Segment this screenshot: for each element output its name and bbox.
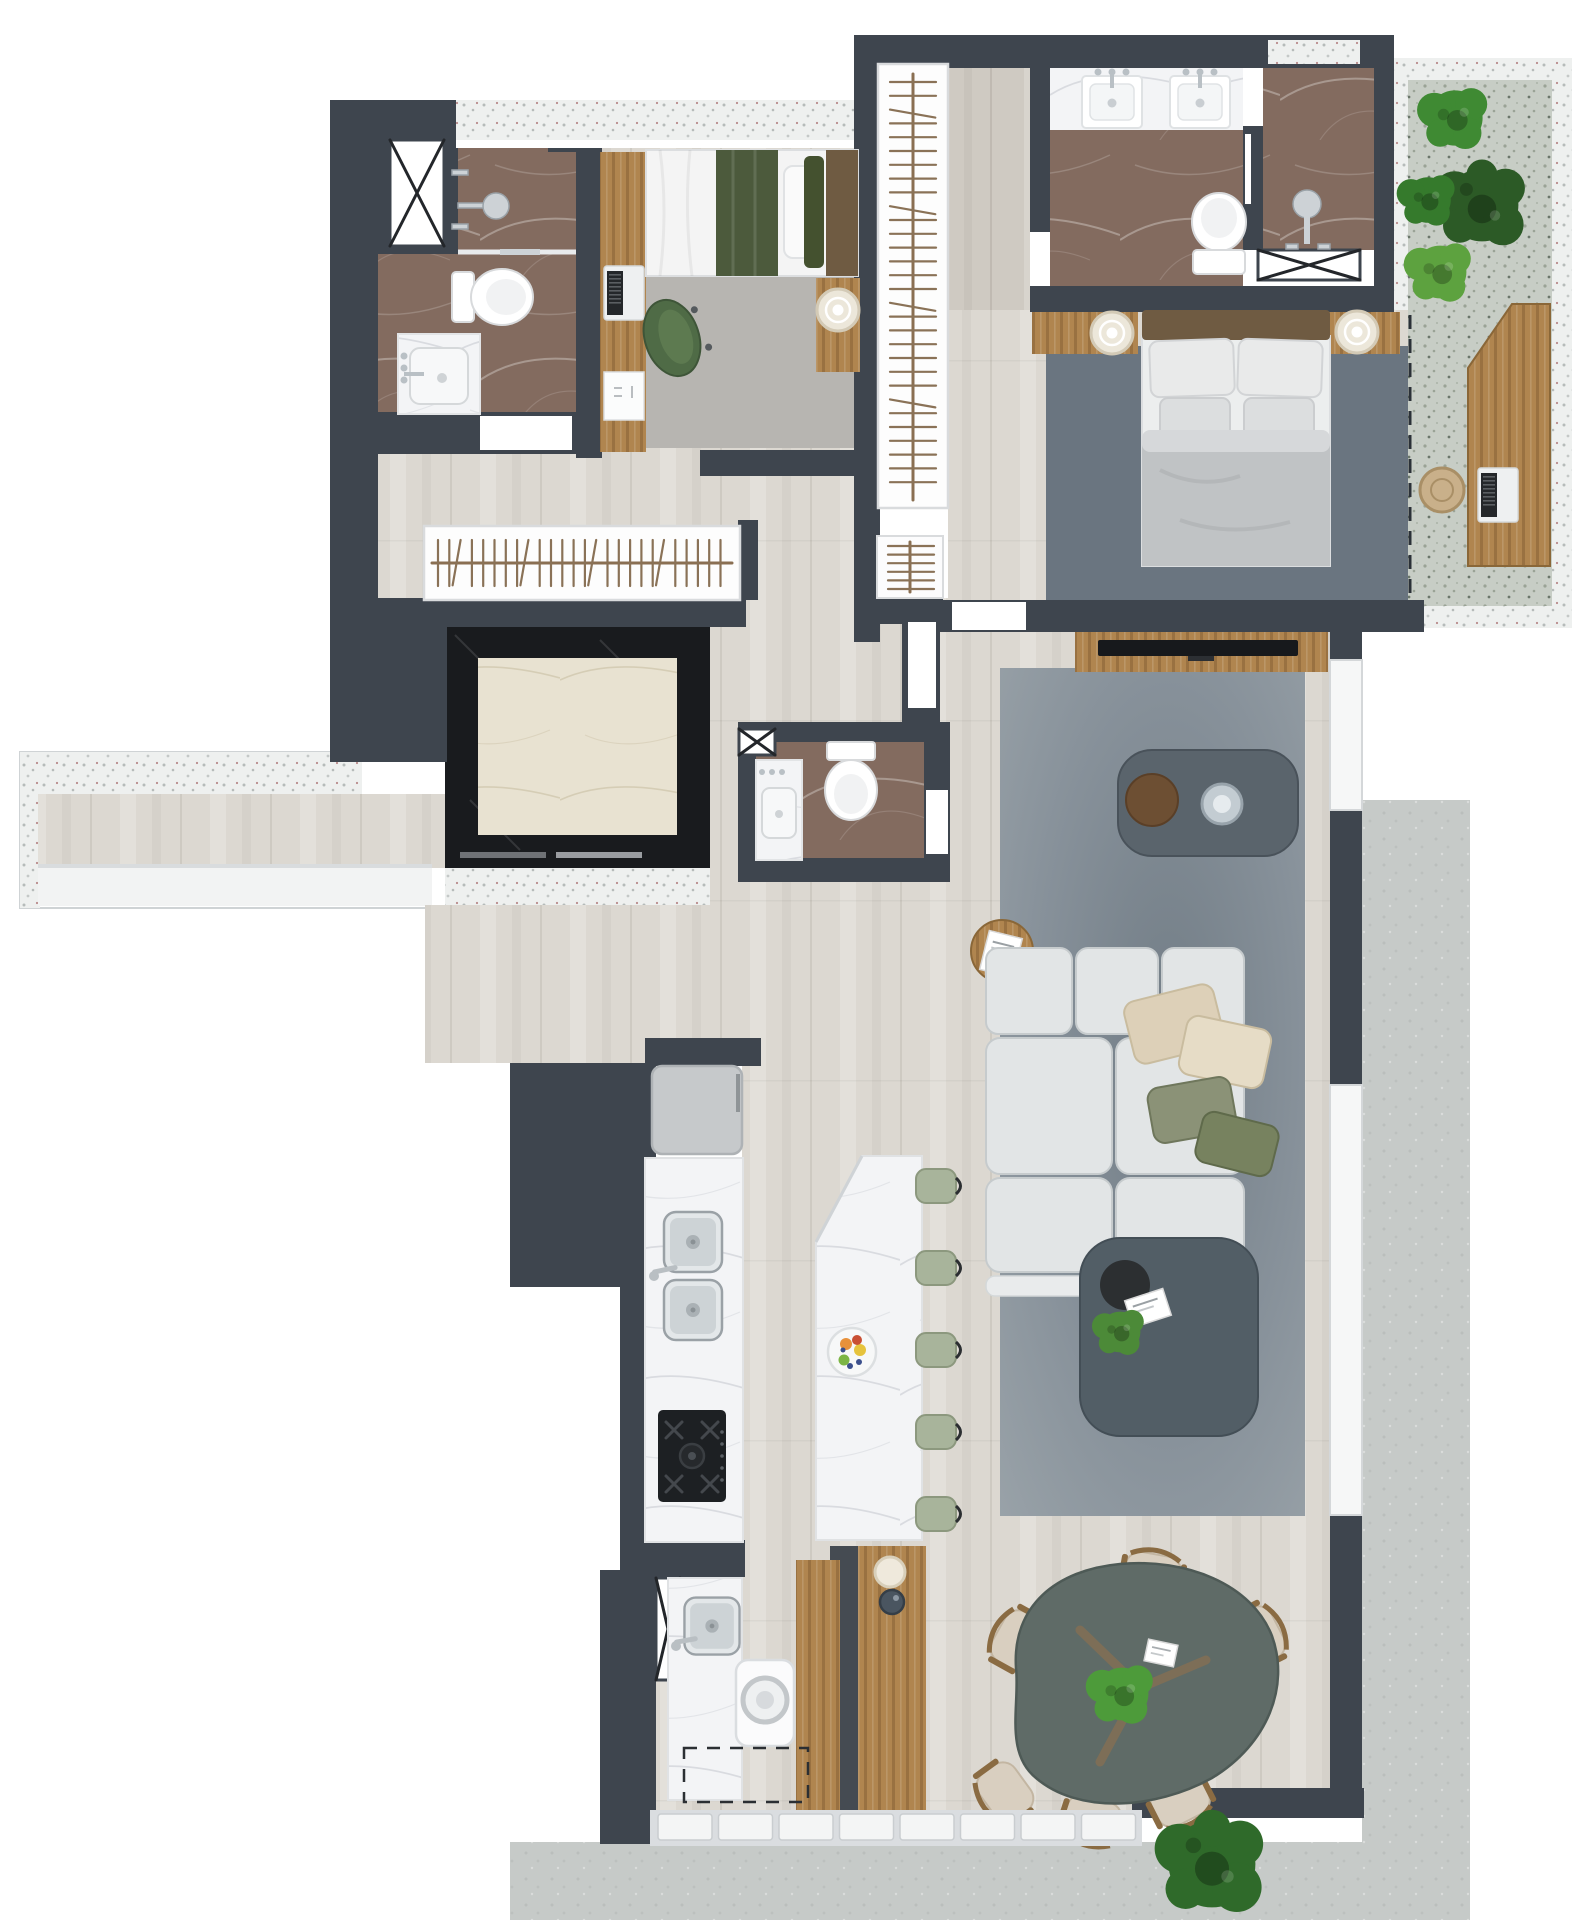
coffee-table-glass <box>1118 750 1298 856</box>
washing-machine <box>736 1660 794 1746</box>
balcony-laptop <box>1478 468 1518 522</box>
corridor-wood-deck <box>38 794 448 868</box>
wall-above-fridge <box>645 1038 761 1066</box>
right-terrace-concrete <box>1362 800 1470 1920</box>
corridor-white-band <box>38 868 432 906</box>
walk-in-closet <box>878 64 948 508</box>
tray-suite2 <box>817 289 859 331</box>
wall-kitchen-chunk <box>510 1063 656 1287</box>
master-shower-floor <box>1263 64 1374 250</box>
wall-bedroom2-bottom <box>700 450 856 476</box>
vase-dark <box>880 1590 904 1614</box>
vanity-powder <box>756 760 802 860</box>
laptop-suite2 <box>604 266 644 320</box>
duvet <box>1142 440 1330 566</box>
wall-entry-closet-bottom <box>877 596 943 624</box>
wall-laundry-left <box>600 1570 656 1844</box>
corridor-left-cap <box>20 752 40 908</box>
kitchen-sink-2 <box>664 1280 722 1340</box>
suite2-window-sill <box>456 140 854 148</box>
corridor-edge-line <box>38 864 432 868</box>
faucet-spout <box>404 372 424 376</box>
double-bed <box>1142 310 1330 566</box>
floor-plan-stage: apartment-floor-plan-top-view <box>0 0 1572 1920</box>
vanity-sink-1 <box>1082 69 1142 129</box>
shower-glass-handle <box>500 249 540 255</box>
floor-plan-svg: apartment-floor-plan-top-view <box>0 0 1572 1920</box>
bath2-door <box>480 416 572 450</box>
wall-master-right <box>1374 64 1394 288</box>
hall-strip-floor <box>708 625 742 1063</box>
gas-cooktop <box>658 1410 726 1502</box>
entry-corridor <box>20 752 448 908</box>
living-window-long <box>1330 1085 1362 1515</box>
living-window-top <box>1330 660 1362 810</box>
sheet-fold <box>1142 430 1330 452</box>
shower-valve-2 <box>452 224 468 229</box>
headboard <box>826 150 858 276</box>
vanity-suite2 <box>398 334 480 414</box>
tray-right <box>1336 311 1378 353</box>
powder-door <box>926 790 948 854</box>
entry-door <box>908 622 936 708</box>
fruit-bowl <box>828 1328 876 1376</box>
single-bed <box>646 150 858 276</box>
entry-closet <box>877 536 943 598</box>
elevator-door-right <box>556 852 642 858</box>
desk-panel <box>604 372 644 420</box>
shower-valve-1 <box>452 170 468 175</box>
table-wood-disc <box>1126 774 1178 826</box>
duct-master <box>1258 250 1360 280</box>
refrigerator-handle <box>736 1074 740 1112</box>
elevator-cab-floor <box>478 658 677 835</box>
duct-powder <box>739 729 775 755</box>
elevator-door-left <box>460 852 546 858</box>
tv-stand <box>1188 656 1214 661</box>
shower-door-line <box>1245 134 1251 204</box>
toilet-master <box>1192 193 1246 274</box>
duct-bath2 <box>390 140 444 246</box>
kitchen-sink-1 <box>664 1212 722 1272</box>
suite2-window-ledge <box>456 100 854 146</box>
tray-left <box>1091 312 1133 354</box>
sideboard <box>830 1546 926 1814</box>
elevator-landing-terrazzo <box>445 868 710 905</box>
hall-wardrobe <box>424 526 740 600</box>
refrigerator <box>652 1066 742 1154</box>
utility-sink <box>684 1598 739 1655</box>
masterbath-door <box>1030 232 1050 286</box>
wall-counter-laundry <box>645 1540 745 1577</box>
bath2-shower-floor <box>456 148 576 254</box>
headboard-master <box>1142 310 1330 340</box>
shower-head <box>483 193 509 219</box>
balcony-office <box>1390 58 1572 628</box>
toilet-suite2 <box>452 269 533 325</box>
headboard-cushion <box>804 156 824 268</box>
elevator <box>445 625 710 905</box>
vanity-sink-2 <box>1170 69 1230 129</box>
vase-cream <box>875 1557 905 1587</box>
tv <box>1098 640 1298 656</box>
corridor-terrazzo-ledge <box>20 752 362 794</box>
wall-elevator-left <box>330 598 447 762</box>
toilet-powder <box>825 742 877 820</box>
wall-powder-bottom <box>738 858 950 882</box>
closet-corridor-floor <box>948 64 1030 312</box>
bottom-shutters <box>650 1810 1142 1846</box>
bottom-terrace-concrete <box>510 1842 1470 1920</box>
wall-bath2-bedroom <box>576 126 602 458</box>
wall-masterbath-bottom <box>1030 286 1394 312</box>
master-window-inset <box>1268 40 1360 64</box>
laundry-cabinet <box>796 1560 840 1812</box>
master-door <box>952 602 1026 630</box>
wicker-stool <box>1420 468 1464 512</box>
